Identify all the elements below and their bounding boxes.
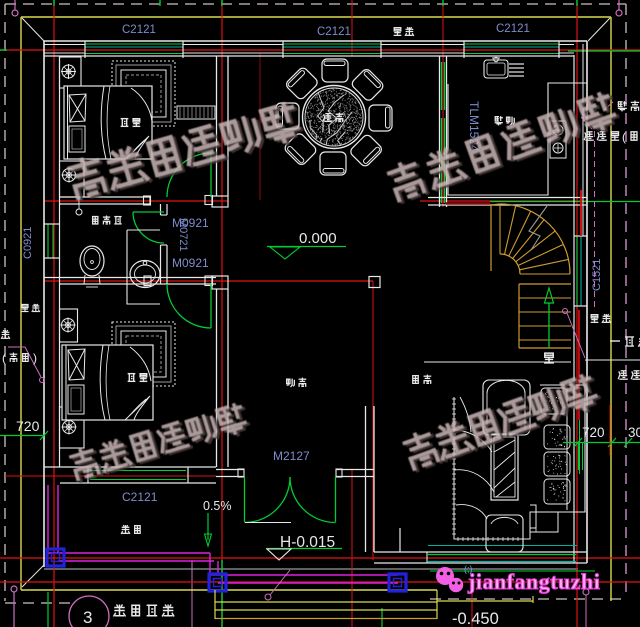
svg-text:jianfangtuzhi: jianfangtuzhi xyxy=(467,569,600,594)
svg-text:C2121: C2121 xyxy=(122,490,158,504)
svg-text:3: 3 xyxy=(83,608,92,627)
svg-text:C2121: C2121 xyxy=(317,26,351,38)
svg-text:-0.450: -0.450 xyxy=(452,610,499,627)
svg-text:720: 720 xyxy=(16,418,40,434)
svg-text:M0921: M0921 xyxy=(172,256,209,270)
svg-text:): ) xyxy=(33,351,37,365)
svg-text:M2127: M2127 xyxy=(273,449,310,463)
svg-text:C2121: C2121 xyxy=(496,23,530,35)
svg-text:0.000: 0.000 xyxy=(299,230,337,247)
svg-text:0.5%: 0.5% xyxy=(203,499,232,513)
svg-text:M0721: M0721 xyxy=(177,218,189,252)
svg-text:C1521: C1521 xyxy=(591,259,603,291)
svg-text:C0921: C0921 xyxy=(22,227,34,259)
svg-text:C2121: C2121 xyxy=(122,24,156,36)
svg-text:720: 720 xyxy=(582,425,605,440)
svg-text:30: 30 xyxy=(628,425,640,440)
svg-text:(: ( xyxy=(622,130,626,144)
svg-text:(: ( xyxy=(2,351,6,365)
